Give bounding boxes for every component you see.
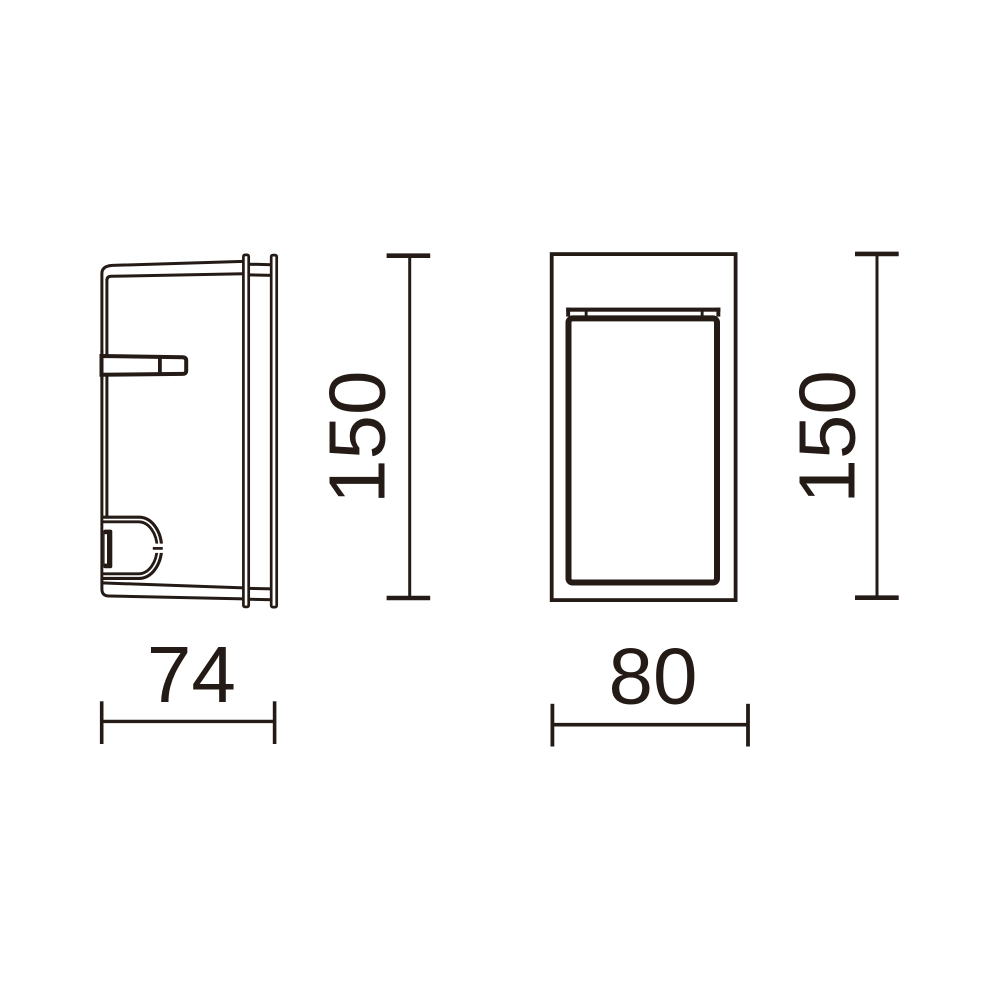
svg-text:150: 150 (783, 370, 872, 503)
svg-text:150: 150 (313, 371, 402, 504)
svg-text:80: 80 (609, 631, 698, 720)
svg-text:74: 74 (147, 630, 236, 719)
